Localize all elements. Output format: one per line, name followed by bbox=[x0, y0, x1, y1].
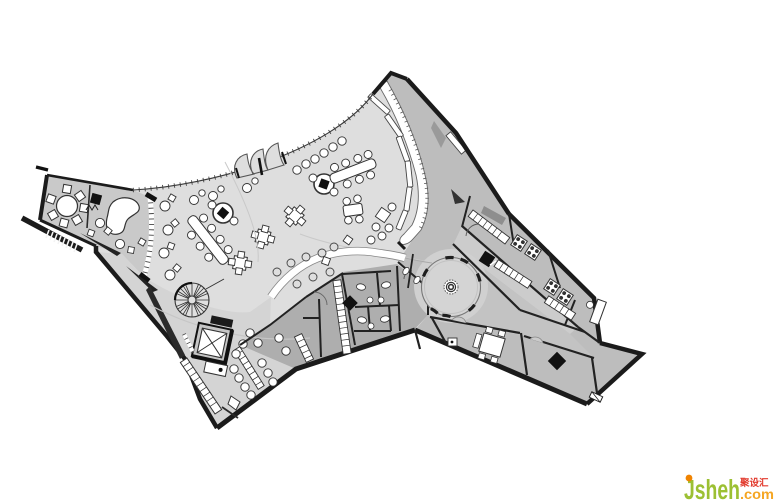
svg-text:Jsheh: Jsheh bbox=[684, 474, 740, 502]
svg-text:聚设汇: 聚设汇 bbox=[739, 477, 769, 489]
